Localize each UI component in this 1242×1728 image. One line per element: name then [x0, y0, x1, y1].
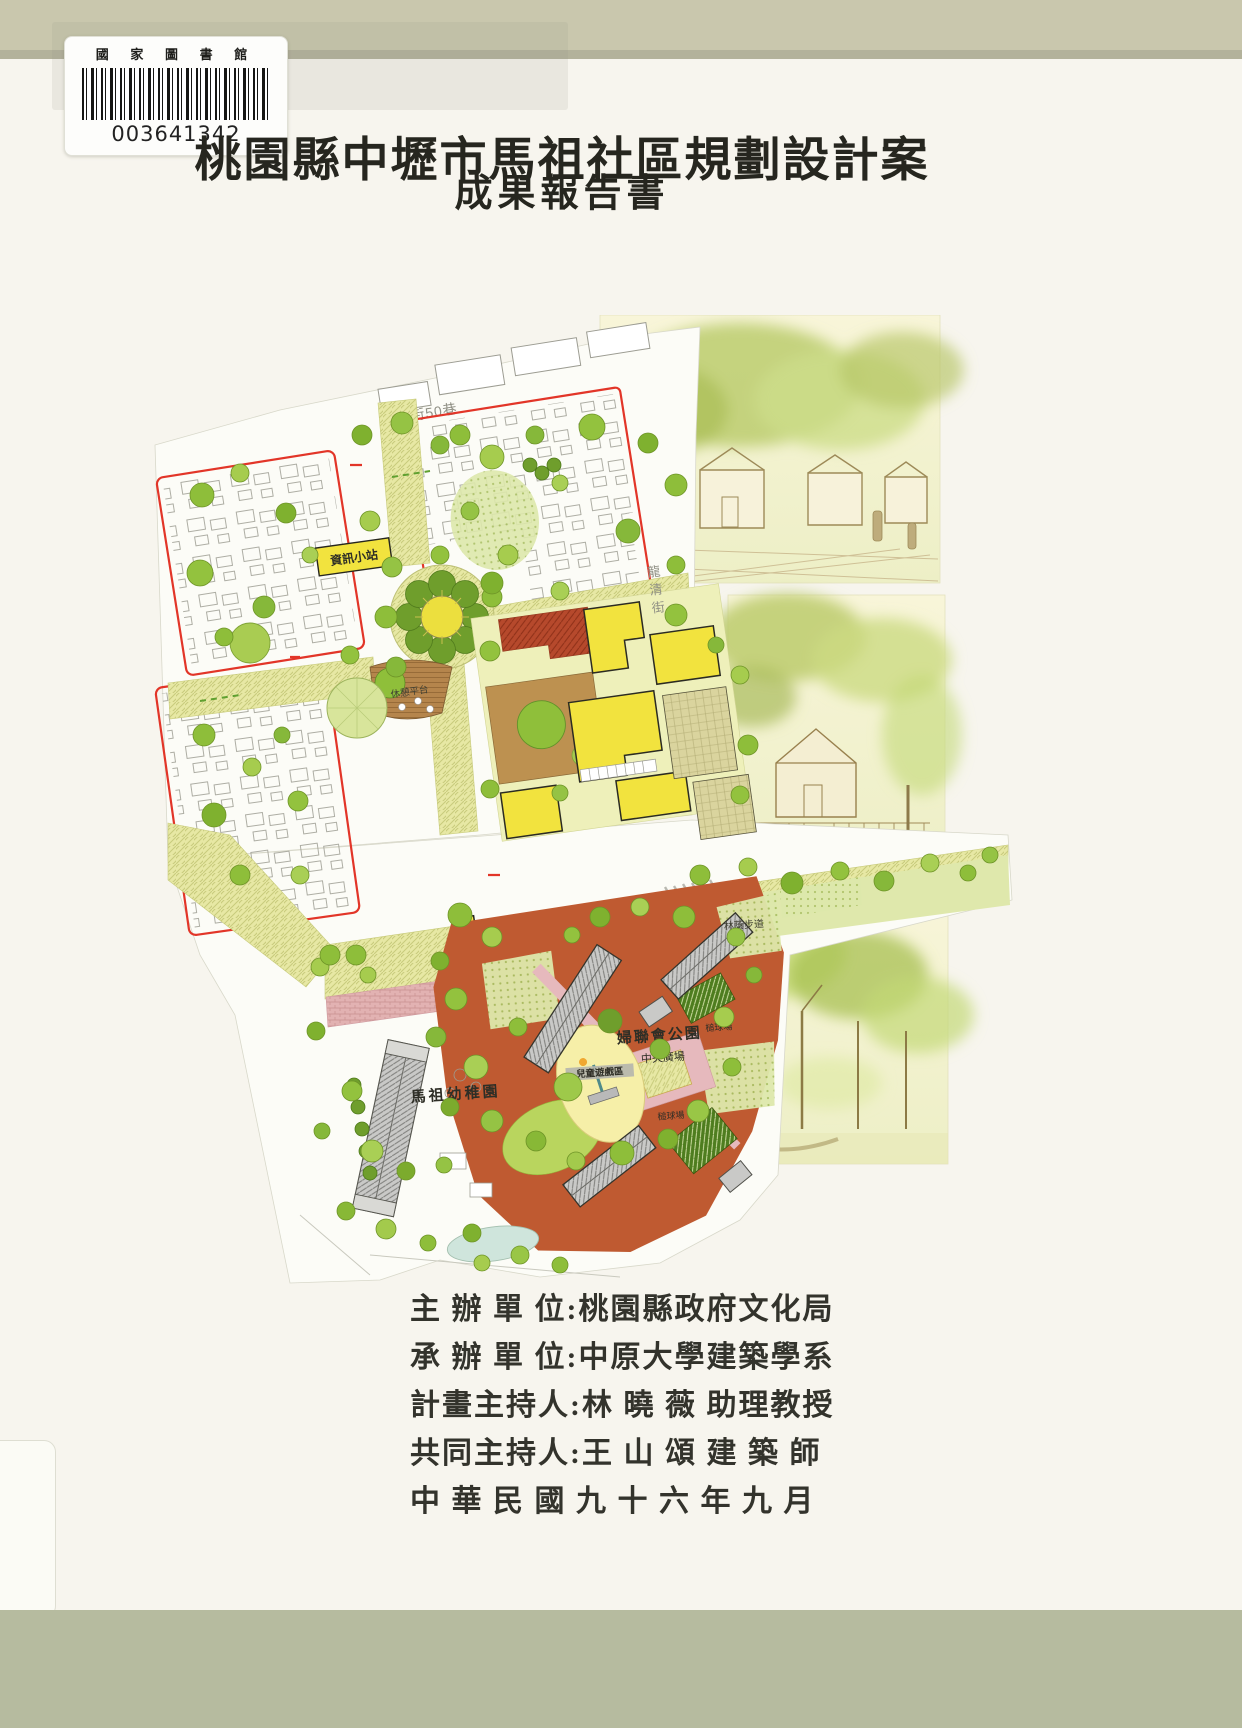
page-subtitle: 成果報告書	[150, 162, 974, 217]
site-plan: 龍清街50巷	[140, 315, 1040, 1295]
credit-line-project-host: 計畫主持人:林 曉 薇 助理教授	[410, 1382, 835, 1430]
credit-line-organizer: 主 辦 單 位:桃園縣政府文化局	[410, 1286, 835, 1334]
credit-line-date: 中 華 民 國 九 十 六 年 九 月	[410, 1478, 835, 1526]
barcode	[82, 68, 270, 120]
credit-line-undertaker: 承 辦 單 位:中原大學建築學系	[410, 1334, 835, 1382]
community-complex	[471, 583, 756, 867]
map-label-croquet-court-b: 槌球場	[657, 1109, 685, 1122]
cover-bottom-strip	[0, 1610, 1242, 1728]
corner-library-label	[0, 1440, 56, 1618]
credits-block: 主 辦 單 位:桃園縣政府文化局 承 辦 單 位:中原大學建築學系 計畫主持人:…	[410, 1286, 835, 1526]
library-name: 國 家 圖 書 館	[96, 44, 256, 63]
credit-line-co-host: 共同主持人:王 山 頌 建 築 師	[410, 1430, 835, 1478]
